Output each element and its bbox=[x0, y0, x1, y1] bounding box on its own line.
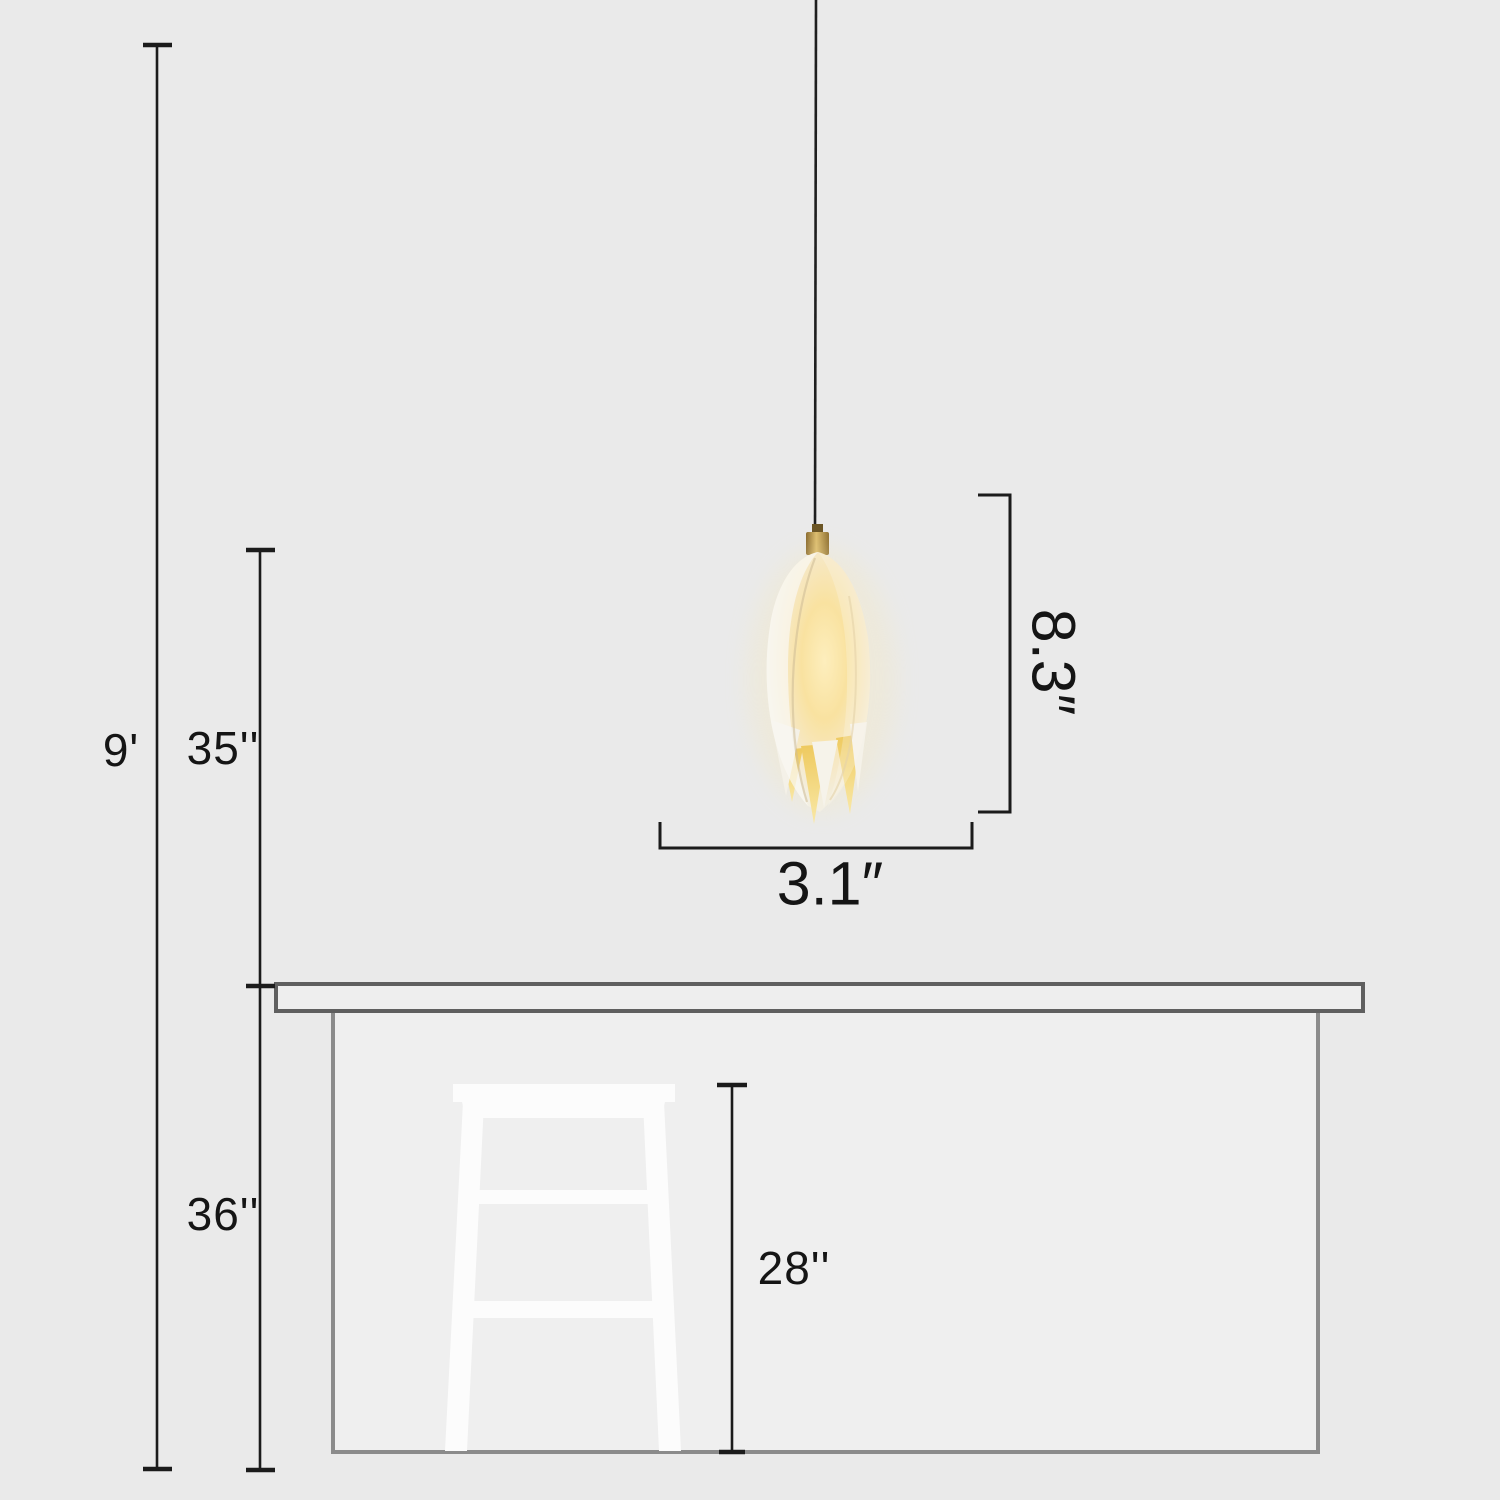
pendant-lamp bbox=[748, 0, 896, 824]
counter-top-slab bbox=[276, 984, 1363, 1011]
lamp-drop-label: 35'' bbox=[187, 725, 260, 771]
shade-width-label: 3.1″ bbox=[777, 854, 883, 915]
shade-height-label: 8.3″ bbox=[1023, 609, 1084, 715]
dimension-diagram: 9' 35'' 36'' 28'' 8.3″ 3.1″ bbox=[0, 0, 1500, 1500]
stool-lower-rung bbox=[466, 1301, 661, 1318]
counter-height-label: 36'' bbox=[187, 1191, 260, 1237]
stool-apron bbox=[462, 1102, 665, 1118]
drop-and-counter-dimension bbox=[246, 550, 275, 1470]
counter-body bbox=[333, 1011, 1318, 1452]
stool-seat bbox=[453, 1084, 675, 1102]
stool-upper-rung bbox=[472, 1190, 655, 1204]
shade-width-bracket bbox=[660, 822, 972, 848]
lamp-cord bbox=[815, 0, 816, 534]
stool-height-label: 28'' bbox=[758, 1245, 831, 1291]
ceiling-height-label: 9' bbox=[103, 727, 139, 773]
shade-height-bracket bbox=[978, 495, 1010, 812]
kitchen-counter bbox=[276, 984, 1363, 1452]
ceiling-height-dimension bbox=[143, 45, 172, 1469]
